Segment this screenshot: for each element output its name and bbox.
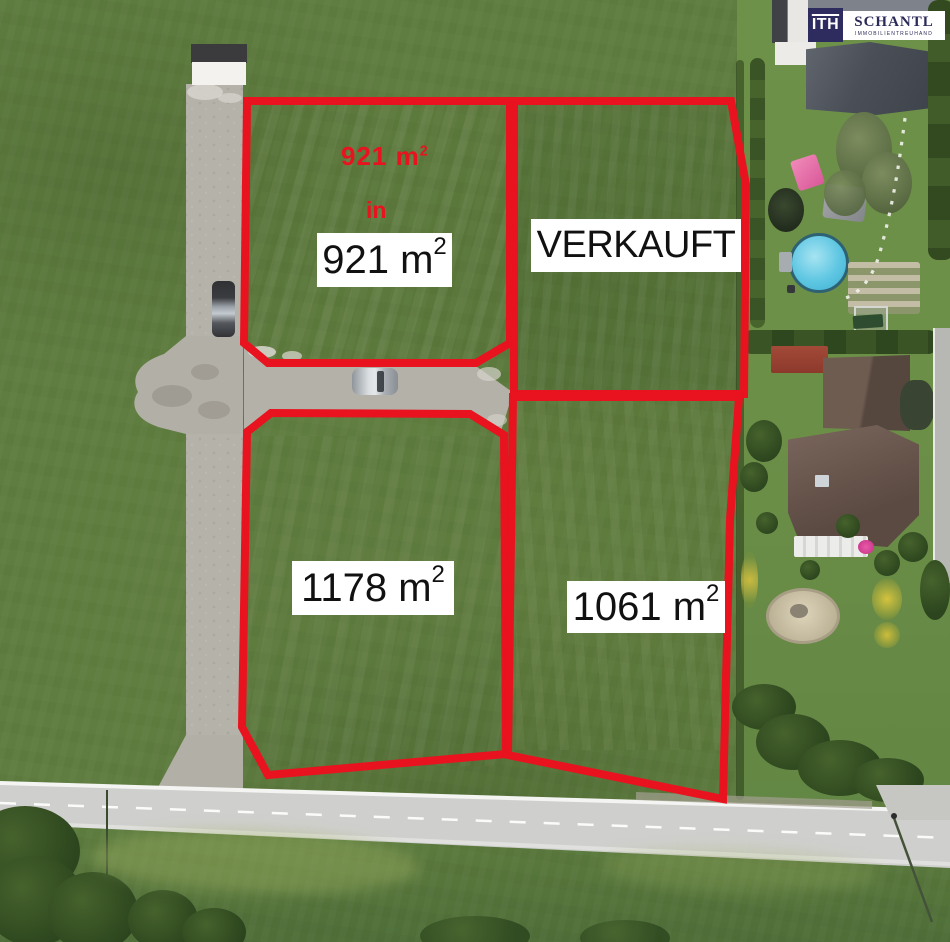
plot-label-verkauft: VERKAUFT [531, 219, 741, 272]
aerial-photo: 921 m2 in 921 m2 VERKAUFT 1178 m2 1061 m… [0, 0, 950, 942]
watermark-area-text: 921 m2 [341, 141, 429, 172]
logo-company-name: SCHANTL [854, 15, 934, 30]
plot-label-1061: 1061 m2 [567, 581, 725, 633]
watermark-word: in [366, 197, 386, 224]
plot-label-921: 921 m2 [317, 233, 452, 287]
ith-monogram-icon: ITH [808, 8, 843, 42]
logo-text-block: SCHANTL IMMOBILIENTREUHAND [843, 11, 945, 40]
logo-tagline: IMMOBILIENTREUHAND [855, 31, 933, 37]
plot-boundaries [0, 0, 950, 942]
plot-label-1178: 1178 m2 [292, 561, 454, 615]
company-logo: ITH SCHANTL IMMOBILIENTREUHAND [808, 8, 945, 42]
